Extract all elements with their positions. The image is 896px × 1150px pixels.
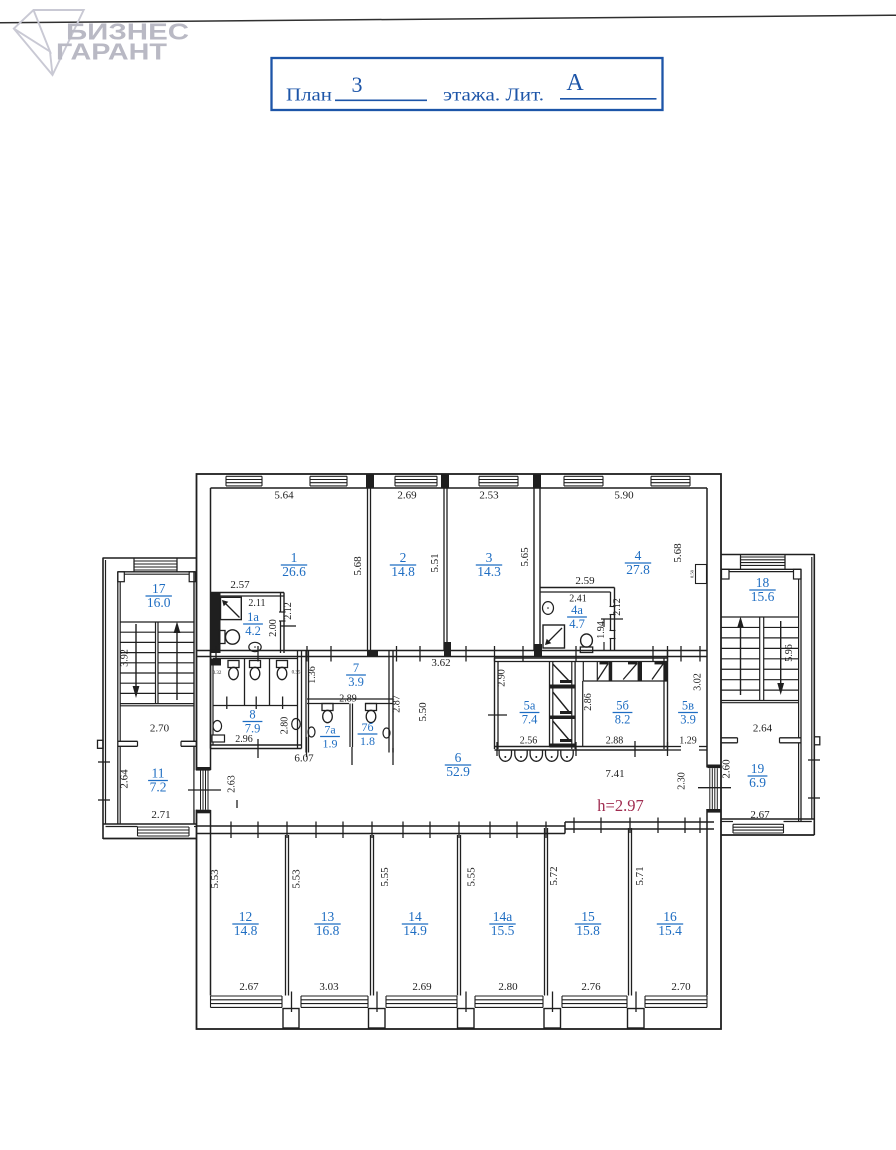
svg-text:7.4: 7.4 bbox=[522, 713, 538, 727]
svg-text:1.94: 1.94 bbox=[596, 621, 607, 639]
svg-text:17: 17 bbox=[152, 581, 166, 596]
svg-text:16: 16 bbox=[663, 909, 677, 924]
svg-text:12: 12 bbox=[239, 909, 253, 924]
svg-text:2.69: 2.69 bbox=[397, 490, 417, 502]
svg-text:6: 6 bbox=[455, 750, 462, 765]
svg-text:14а: 14а bbox=[493, 909, 513, 924]
svg-text:1.36: 1.36 bbox=[307, 666, 318, 684]
svg-text:5.96: 5.96 bbox=[784, 644, 795, 662]
svg-text:5.53: 5.53 bbox=[209, 869, 221, 889]
svg-text:5б: 5б bbox=[616, 699, 629, 713]
svg-text:0.35: 0.35 bbox=[292, 671, 301, 676]
svg-text:2.57: 2.57 bbox=[230, 579, 250, 591]
svg-text:4.7: 4.7 bbox=[569, 617, 585, 631]
svg-text:2.70: 2.70 bbox=[671, 981, 691, 993]
svg-text:19: 19 bbox=[751, 761, 765, 776]
svg-text:16.8: 16.8 bbox=[316, 923, 340, 938]
svg-text:0.32: 0.32 bbox=[213, 671, 222, 676]
svg-text:6.07: 6.07 bbox=[294, 753, 314, 765]
svg-text:2.87: 2.87 bbox=[392, 695, 403, 713]
svg-text:3.62: 3.62 bbox=[431, 657, 450, 669]
svg-text:2.96: 2.96 bbox=[235, 734, 253, 745]
svg-text:4.2: 4.2 bbox=[245, 624, 261, 638]
svg-text:2: 2 bbox=[400, 550, 407, 565]
svg-text:1.29: 1.29 bbox=[679, 736, 697, 747]
svg-text:8: 8 bbox=[249, 708, 255, 722]
svg-text:этажа. Лит.: этажа. Лит. bbox=[443, 85, 544, 105]
svg-text:14.8: 14.8 bbox=[234, 923, 258, 938]
svg-text:2.41: 2.41 bbox=[569, 594, 587, 605]
svg-text:13: 13 bbox=[321, 909, 335, 924]
svg-text:5.71: 5.71 bbox=[634, 866, 646, 885]
svg-text:18: 18 bbox=[756, 575, 770, 590]
svg-text:14: 14 bbox=[408, 909, 422, 924]
svg-text:4: 4 bbox=[635, 548, 642, 563]
svg-text:2.00: 2.00 bbox=[268, 619, 279, 637]
svg-text:3: 3 bbox=[486, 550, 493, 565]
svg-text:15.8: 15.8 bbox=[576, 923, 600, 938]
svg-text:2.88: 2.88 bbox=[606, 736, 624, 747]
svg-text:3: 3 bbox=[352, 72, 363, 97]
svg-text:5.68: 5.68 bbox=[352, 556, 364, 576]
svg-text:5в: 5в bbox=[682, 699, 694, 713]
svg-text:11: 11 bbox=[152, 766, 165, 781]
svg-text:2.53: 2.53 bbox=[479, 490, 499, 502]
svg-text:2.86: 2.86 bbox=[583, 693, 594, 711]
svg-text:2.90: 2.90 bbox=[497, 669, 508, 687]
svg-text:14.8: 14.8 bbox=[391, 564, 415, 579]
svg-text:7а: 7а bbox=[324, 723, 336, 737]
svg-text:5.51: 5.51 bbox=[429, 553, 441, 572]
svg-text:1.9: 1.9 bbox=[323, 737, 338, 751]
svg-text:5а: 5а bbox=[524, 699, 536, 713]
svg-text:6.9: 6.9 bbox=[749, 775, 766, 790]
svg-text:16.0: 16.0 bbox=[147, 595, 171, 610]
svg-text:2.30: 2.30 bbox=[677, 772, 688, 790]
svg-text:8.2: 8.2 bbox=[615, 713, 631, 727]
svg-text:3.92: 3.92 bbox=[120, 649, 131, 667]
svg-text:3.02: 3.02 bbox=[693, 673, 704, 691]
svg-text:2.59: 2.59 bbox=[575, 575, 595, 587]
svg-text:5.68: 5.68 bbox=[672, 543, 684, 563]
svg-text:2.71: 2.71 bbox=[151, 809, 170, 821]
svg-text:7: 7 bbox=[353, 661, 359, 675]
svg-text:14.9: 14.9 bbox=[403, 923, 427, 938]
svg-text:5.53: 5.53 bbox=[291, 869, 303, 889]
svg-text:1.8: 1.8 bbox=[360, 734, 375, 748]
svg-text:4а: 4а bbox=[571, 603, 583, 617]
svg-text:1а: 1а bbox=[247, 610, 259, 624]
svg-text:3.9: 3.9 bbox=[680, 713, 696, 727]
svg-text:2.80: 2.80 bbox=[498, 981, 518, 993]
svg-text:15.4: 15.4 bbox=[658, 923, 682, 938]
svg-text:2.56: 2.56 bbox=[520, 736, 538, 747]
svg-text:7б: 7б bbox=[361, 720, 373, 734]
svg-text:5.72: 5.72 bbox=[548, 866, 560, 885]
svg-text:52.9: 52.9 bbox=[446, 764, 470, 779]
svg-text:2.76: 2.76 bbox=[581, 981, 601, 993]
svg-text:2.63: 2.63 bbox=[227, 775, 238, 793]
svg-text:2.64: 2.64 bbox=[753, 723, 773, 735]
svg-text:2.67: 2.67 bbox=[239, 981, 259, 993]
svg-text:2.69: 2.69 bbox=[412, 981, 432, 993]
svg-text:15: 15 bbox=[581, 909, 595, 924]
svg-text:0.58: 0.58 bbox=[690, 569, 695, 578]
svg-text:5.90: 5.90 bbox=[614, 490, 634, 502]
svg-text:7.2: 7.2 bbox=[150, 780, 167, 795]
svg-text:5.65: 5.65 bbox=[519, 547, 531, 567]
svg-text:27.8: 27.8 bbox=[626, 562, 650, 577]
svg-text:5.55: 5.55 bbox=[379, 867, 391, 887]
svg-text:2.70: 2.70 bbox=[150, 723, 170, 735]
svg-text:А: А bbox=[566, 70, 584, 96]
svg-text:5.64: 5.64 bbox=[274, 490, 294, 502]
svg-text:14.3: 14.3 bbox=[477, 564, 501, 579]
svg-text:5.50: 5.50 bbox=[417, 702, 429, 722]
svg-text:2.80: 2.80 bbox=[280, 717, 291, 735]
svg-text:2.89: 2.89 bbox=[339, 694, 357, 705]
svg-text:26.6: 26.6 bbox=[282, 564, 306, 579]
svg-text:15.6: 15.6 bbox=[751, 589, 775, 604]
svg-text:2.60: 2.60 bbox=[721, 759, 733, 779]
svg-text:2.12: 2.12 bbox=[612, 598, 623, 616]
svg-text:7.41: 7.41 bbox=[605, 768, 624, 780]
svg-text:2.64: 2.64 bbox=[119, 769, 131, 789]
svg-text:ГАРАНТ: ГАРАНТ bbox=[56, 39, 167, 65]
svg-text:3.9: 3.9 bbox=[348, 675, 364, 689]
svg-text:План: План bbox=[286, 85, 332, 105]
svg-text:2.12: 2.12 bbox=[283, 602, 294, 620]
svg-text:3.03: 3.03 bbox=[319, 981, 339, 993]
svg-text:1: 1 bbox=[291, 550, 298, 565]
svg-text:2.11: 2.11 bbox=[248, 598, 265, 609]
svg-text:h=2.97: h=2.97 bbox=[597, 796, 643, 815]
svg-text:15.5: 15.5 bbox=[491, 923, 515, 938]
svg-text:5.55: 5.55 bbox=[466, 867, 478, 887]
